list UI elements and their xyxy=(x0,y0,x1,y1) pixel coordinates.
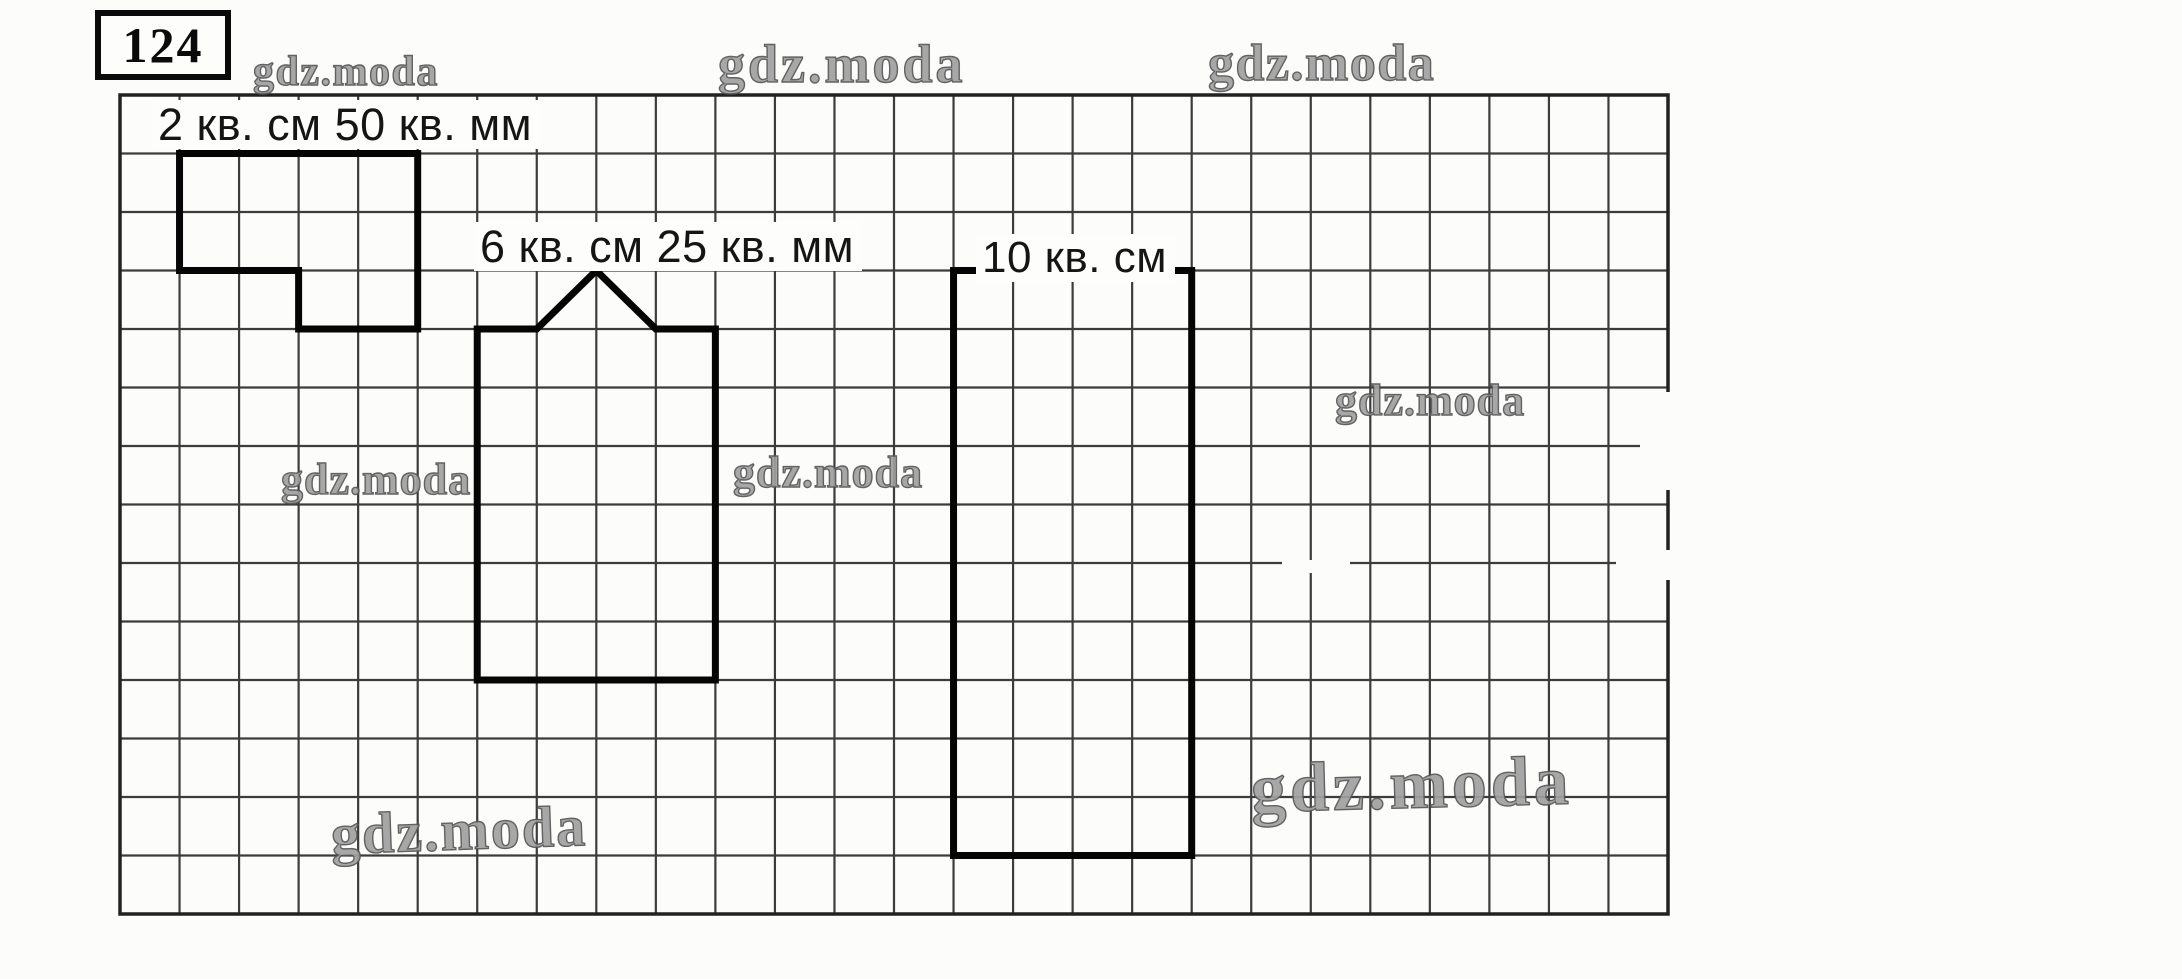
gdz-moda-watermark: gdz.moda xyxy=(1335,379,1525,423)
gdz-moda-watermark: gdz.moda xyxy=(1208,38,1435,90)
gdz-moda-watermark: gdz.moda xyxy=(281,458,471,502)
problem-number: 124 xyxy=(123,20,204,70)
textbook-scan-page: 124 2 кв. см 50 кв. мм6 кв. см 25 кв. мм… xyxy=(0,0,2182,979)
problem-number-box: 124 xyxy=(95,10,231,80)
erasure-patch xyxy=(1282,560,1350,573)
erasure-patch xyxy=(1320,541,1356,559)
gdz-moda-watermark: gdz.moda xyxy=(1250,747,1573,825)
gdz-moda-watermark: gdz.moda xyxy=(330,797,588,864)
gdz-moda-watermark: gdz.moda xyxy=(733,451,923,495)
gdz-moda-watermark: gdz.moda xyxy=(718,37,966,91)
erasure-patch xyxy=(1640,392,1678,490)
gdz-moda-watermark: gdz.moda xyxy=(253,51,439,93)
area-label-step-figure: 2 кв. см 50 кв. мм xyxy=(152,100,540,149)
area-label-pentagon-house-figure: 6 кв. см 25 кв. мм xyxy=(474,222,862,271)
area-label-tall-rectangle-figure: 10 кв. см xyxy=(976,234,1175,282)
erasure-patch xyxy=(1616,550,1672,580)
